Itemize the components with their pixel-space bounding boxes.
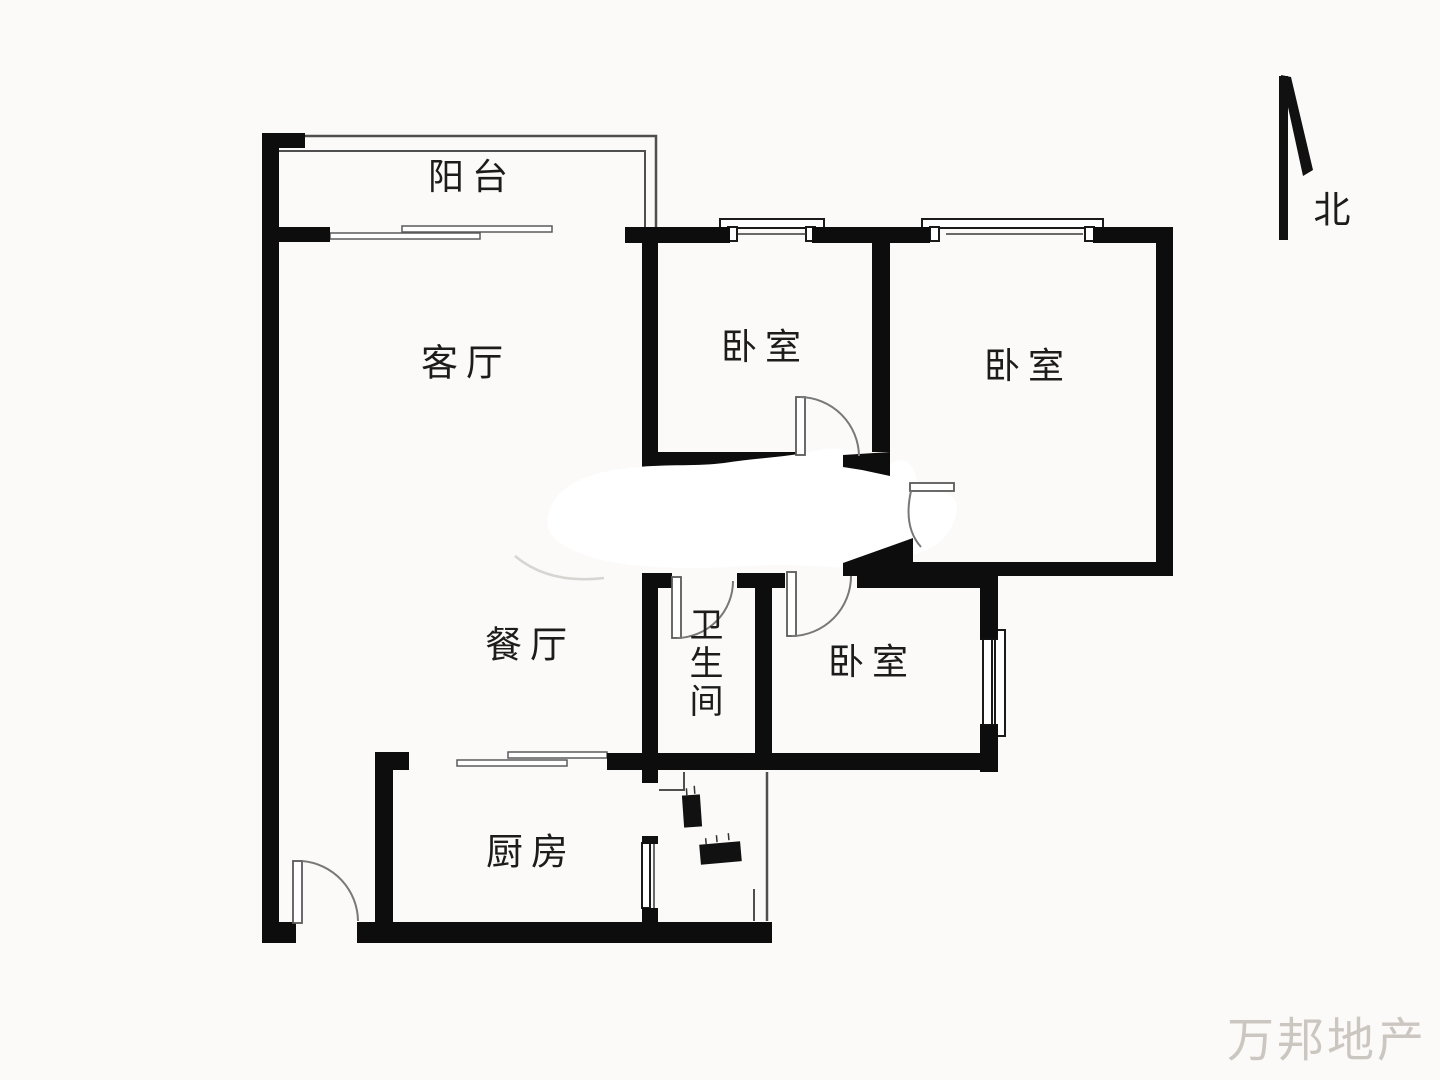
room-label-bedroom-north-left: 卧室 bbox=[721, 329, 809, 365]
bedroom3-door bbox=[787, 572, 851, 636]
room-label-bathroom: 卫生间 bbox=[685, 607, 719, 721]
compass-north-label: 北 bbox=[1314, 193, 1351, 230]
floorplan-page: 阳台 客厅 餐厅 卧室 卧室 卧室 卫生间 厨房 北 万邦地产 bbox=[0, 0, 1440, 1080]
room-label-living-room: 客厅 bbox=[421, 346, 511, 383]
watermark: 万邦地产 bbox=[1227, 1002, 1427, 1071]
bedroom1-window bbox=[720, 219, 824, 241]
faint-erased-arc bbox=[515, 556, 604, 579]
room-label-kitchen: 厨房 bbox=[486, 835, 576, 872]
bedroom1-door bbox=[796, 397, 859, 456]
bedroom3-window bbox=[980, 630, 1005, 736]
entrance-door bbox=[293, 861, 358, 923]
kitchen-sliding-door bbox=[457, 752, 607, 766]
plumbing-fixture-1 bbox=[681, 785, 702, 827]
room-label-bedroom-north-right: 卧室 bbox=[984, 348, 1072, 384]
north-arrow-icon bbox=[1279, 75, 1313, 240]
room-label-bedroom-east: 卧室 bbox=[828, 644, 916, 680]
plumbing-fixture-2 bbox=[698, 832, 741, 864]
room-label-balcony: 阳台 bbox=[428, 159, 516, 195]
room-label-dining-room: 餐厅 bbox=[485, 628, 575, 665]
floorplan-drawing bbox=[0, 0, 1440, 1080]
balcony-sliding-door bbox=[330, 226, 552, 239]
utility-window bbox=[642, 836, 658, 908]
bedroom2-window bbox=[922, 219, 1103, 241]
